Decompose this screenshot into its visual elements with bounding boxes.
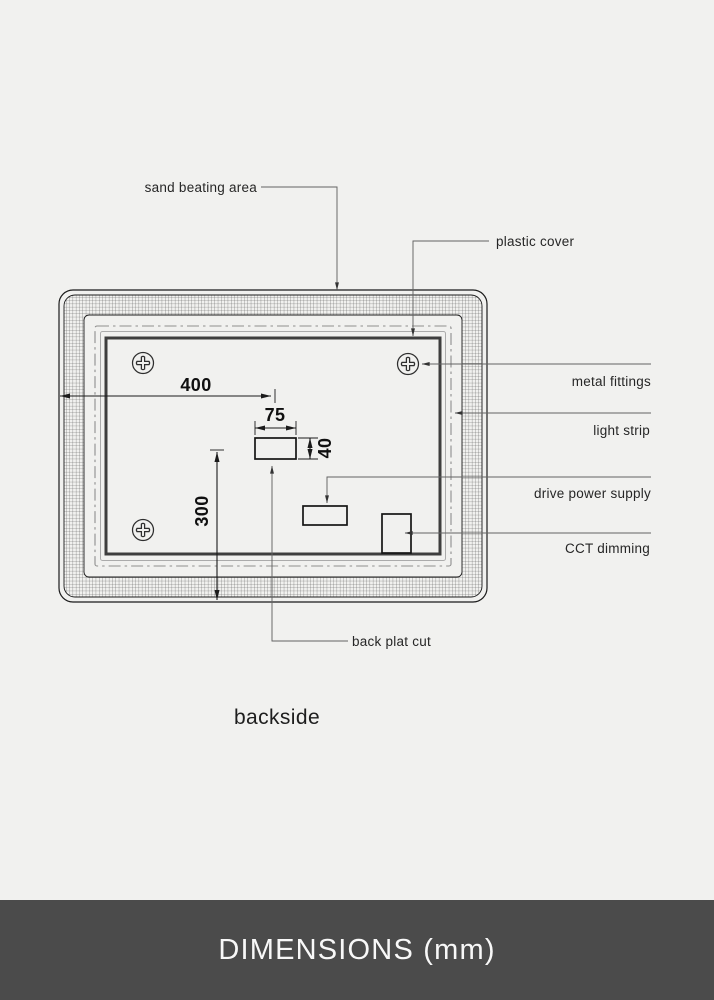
footer-title: DIMENSIONS (mm) <box>218 934 495 967</box>
dim-300-value: 300 <box>192 495 212 526</box>
leader-sand-beating-area <box>261 187 337 290</box>
label-light-strip: light strip <box>593 423 650 438</box>
drive-power-supply-rect <box>303 506 347 525</box>
drawing-caption: backside <box>234 706 320 729</box>
label-plastic-cover: plastic cover <box>496 234 575 249</box>
label-cct-dimming: CCT dimming <box>565 541 650 556</box>
cct-dimming-rect <box>382 514 411 553</box>
label-drive-power-supply: drive power supply <box>534 486 651 501</box>
dim-40-value: 40 <box>315 438 335 459</box>
label-back-plat-cut: back plat cut <box>352 634 431 649</box>
dim-75-value: 75 <box>265 405 286 425</box>
label-metal-fittings: metal fittings <box>572 374 651 389</box>
label-sand-beating-area: sand beating area <box>145 180 258 195</box>
drawing-canvas: 400 75 40 300 sand beating area plastic … <box>0 0 714 900</box>
dim-400-value: 400 <box>180 375 211 395</box>
technical-drawing: 400 75 40 300 sand beating area plastic … <box>0 0 714 900</box>
back-plat-cut-rect <box>255 438 296 459</box>
footer-bar: DIMENSIONS (mm) <box>0 900 714 1000</box>
